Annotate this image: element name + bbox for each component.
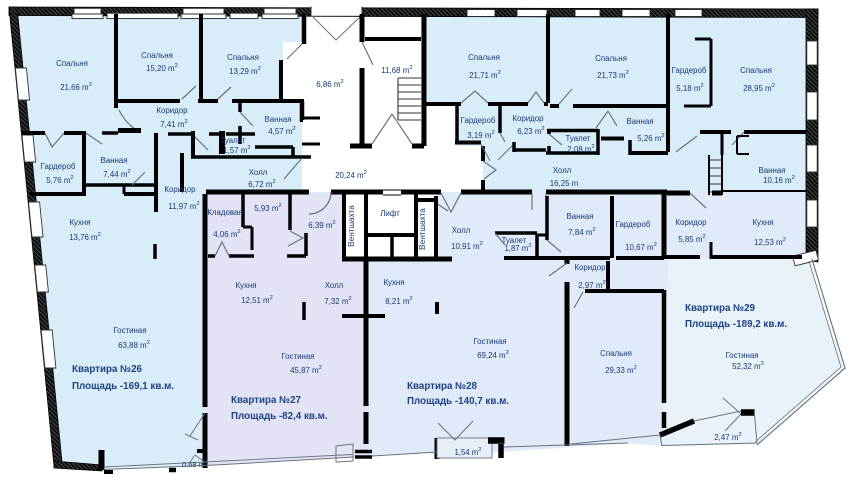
svg-text:Ванная: Ванная bbox=[758, 166, 785, 175]
svg-text:Вентшахта: Вентшахта bbox=[418, 208, 427, 250]
svg-text:12,51 m2: 12,51 m2 bbox=[241, 295, 273, 305]
svg-text:5,76 m2: 5,76 m2 bbox=[46, 175, 73, 185]
svg-text:Ванная: Ванная bbox=[264, 115, 291, 124]
svg-text:15,20 m2: 15,20 m2 bbox=[146, 63, 178, 73]
svg-text:7,84 m2: 7,84 m2 bbox=[568, 227, 595, 237]
svg-text:29,33 m2: 29,33 m2 bbox=[605, 365, 637, 375]
svg-text:Гардероб: Гардероб bbox=[672, 66, 707, 75]
svg-text:Кухня: Кухня bbox=[235, 281, 256, 290]
svg-text:Квартира №29: Квартира №29 bbox=[685, 303, 756, 314]
svg-text:Площадь -189,2 кв.м.: Площадь -189,2 кв.м. bbox=[685, 319, 787, 330]
svg-text:Гардероб: Гардероб bbox=[461, 116, 496, 125]
svg-text:Холл: Холл bbox=[325, 281, 344, 290]
svg-text:Коридор: Коридор bbox=[156, 106, 188, 115]
svg-text:5,26 m2: 5,26 m2 bbox=[637, 133, 664, 143]
svg-text:11,97 m2: 11,97 m2 bbox=[168, 201, 199, 211]
svg-text:Квартира №28: Квартира №28 bbox=[407, 381, 478, 392]
svg-text:69,24 m2: 69,24 m2 bbox=[477, 350, 509, 360]
svg-text:Вентшахта: Вентшахта bbox=[347, 205, 356, 247]
svg-text:45,87 m2: 45,87 m2 bbox=[290, 365, 322, 375]
svg-text:Коридор: Коридор bbox=[512, 114, 544, 123]
svg-text:Холл: Холл bbox=[452, 226, 471, 235]
svg-text:6,72 m2: 6,72 m2 bbox=[248, 179, 275, 189]
svg-text:7,41 m2: 7,41 m2 bbox=[160, 119, 187, 129]
svg-text:3,19 m2: 3,19 m2 bbox=[467, 130, 494, 140]
svg-text:Гардероб: Гардероб bbox=[41, 162, 76, 171]
svg-text:Спальня: Спальня bbox=[227, 53, 259, 62]
svg-text:5,85 m2: 5,85 m2 bbox=[678, 234, 705, 244]
svg-text:13,29 m2: 13,29 m2 bbox=[229, 66, 261, 76]
svg-text:Спальня: Спальня bbox=[600, 349, 632, 358]
svg-text:Спальня: Спальня bbox=[141, 51, 173, 60]
svg-text:4,06 m2: 4,06 m2 bbox=[213, 229, 240, 239]
svg-text:Гостиная: Гостиная bbox=[113, 326, 146, 335]
svg-text:1,87 m2: 1,87 m2 bbox=[504, 243, 531, 253]
svg-text:Кухня: Кухня bbox=[752, 218, 773, 227]
svg-text:Площадь -169,1 кв.м.: Площадь -169,1 кв.м. bbox=[72, 381, 174, 392]
svg-text:Коридор: Коридор bbox=[675, 218, 707, 227]
svg-text:Площадь -82,4 кв.м.: Площадь -82,4 кв.м. bbox=[231, 411, 328, 422]
svg-text:Лифт: Лифт bbox=[380, 209, 400, 218]
svg-text:2,97 m2: 2,97 m2 bbox=[578, 280, 605, 290]
svg-text:Квартира №27: Квартира №27 bbox=[231, 395, 302, 406]
svg-text:7,32 m2: 7,32 m2 bbox=[324, 296, 351, 306]
svg-text:Коридор: Коридор bbox=[574, 263, 606, 272]
svg-text:52,32 m2: 52,32 m2 bbox=[732, 361, 764, 371]
svg-text:10,16 m2: 10,16 m2 bbox=[763, 175, 795, 185]
svg-text:Спальня: Спальня bbox=[595, 54, 627, 63]
svg-text:28,95 m2: 28,95 m2 bbox=[743, 83, 775, 93]
svg-text:63,88 m2: 63,88 m2 bbox=[118, 340, 150, 350]
svg-text:Площадь -140,7 кв.м.: Площадь -140,7 кв.м. bbox=[407, 396, 509, 407]
svg-text:Коридор: Коридор bbox=[164, 185, 196, 194]
svg-text:5,18 m2: 5,18 m2 bbox=[676, 83, 703, 93]
svg-text:Туалет: Туалет bbox=[221, 136, 246, 145]
svg-text:Ванная: Ванная bbox=[626, 117, 653, 126]
svg-text:Холл: Холл bbox=[249, 168, 268, 177]
svg-text:1,57 m2: 1,57 m2 bbox=[223, 145, 250, 155]
svg-text:Холл: Холл bbox=[553, 166, 572, 175]
svg-text:Туалет: Туалет bbox=[566, 134, 591, 143]
svg-text:Кладовая: Кладовая bbox=[207, 208, 242, 217]
svg-text:Спальня: Спальня bbox=[56, 59, 88, 68]
svg-text:13,76 m2: 13,76 m2 bbox=[69, 232, 101, 242]
svg-text:Гостиная: Гостиная bbox=[281, 352, 314, 361]
svg-text:Ванная: Ванная bbox=[100, 156, 127, 165]
svg-text:12,53 m2: 12,53 m2 bbox=[754, 237, 786, 247]
svg-text:2,47 m2: 2,47 m2 bbox=[714, 432, 741, 442]
svg-text:1,54 m2: 1,54 m2 bbox=[454, 447, 481, 457]
svg-text:4,57 m2: 4,57 m2 bbox=[268, 126, 295, 136]
svg-text:8,21 m2: 8,21 m2 bbox=[385, 296, 412, 306]
svg-text:5,93 m2: 5,93 m2 bbox=[254, 203, 281, 213]
svg-text:10,67 m2: 10,67 m2 bbox=[625, 242, 657, 252]
svg-text:Гардероб: Гардероб bbox=[616, 220, 651, 229]
svg-text:Гостиная: Гостиная bbox=[725, 351, 758, 360]
svg-text:6,23 m2: 6,23 m2 bbox=[517, 126, 544, 136]
svg-text:Квартира №26: Квартира №26 bbox=[72, 364, 143, 375]
svg-text:21,71 m2: 21,71 m2 bbox=[469, 70, 501, 80]
svg-text:6,86 m2: 6,86 m2 bbox=[316, 79, 343, 89]
svg-text:7,44 m2: 7,44 m2 bbox=[103, 169, 130, 179]
svg-text:Спальня: Спальня bbox=[740, 66, 772, 75]
svg-text:21,66 m2: 21,66 m2 bbox=[60, 82, 92, 92]
svg-text:Спальня: Спальня bbox=[468, 53, 500, 62]
svg-text:Кухня: Кухня bbox=[383, 278, 404, 287]
svg-text:21,73 m2: 21,73 m2 bbox=[597, 70, 629, 80]
svg-text:0,68 m2: 0,68 m2 bbox=[182, 459, 208, 469]
svg-text:Ванная: Ванная bbox=[566, 212, 593, 221]
svg-text:16,25 m: 16,25 m bbox=[550, 179, 579, 188]
svg-text:2,08 m2: 2,08 m2 bbox=[567, 144, 594, 154]
svg-text:6,39 m2: 6,39 m2 bbox=[308, 220, 335, 230]
svg-text:20,24 m2: 20,24 m2 bbox=[335, 170, 367, 180]
svg-text:Кухня: Кухня bbox=[69, 218, 90, 227]
svg-text:10,91 m2: 10,91 m2 bbox=[451, 241, 483, 251]
svg-text:11,68 m2: 11,68 m2 bbox=[381, 65, 412, 75]
svg-text:Гостиная: Гостиная bbox=[473, 337, 506, 346]
